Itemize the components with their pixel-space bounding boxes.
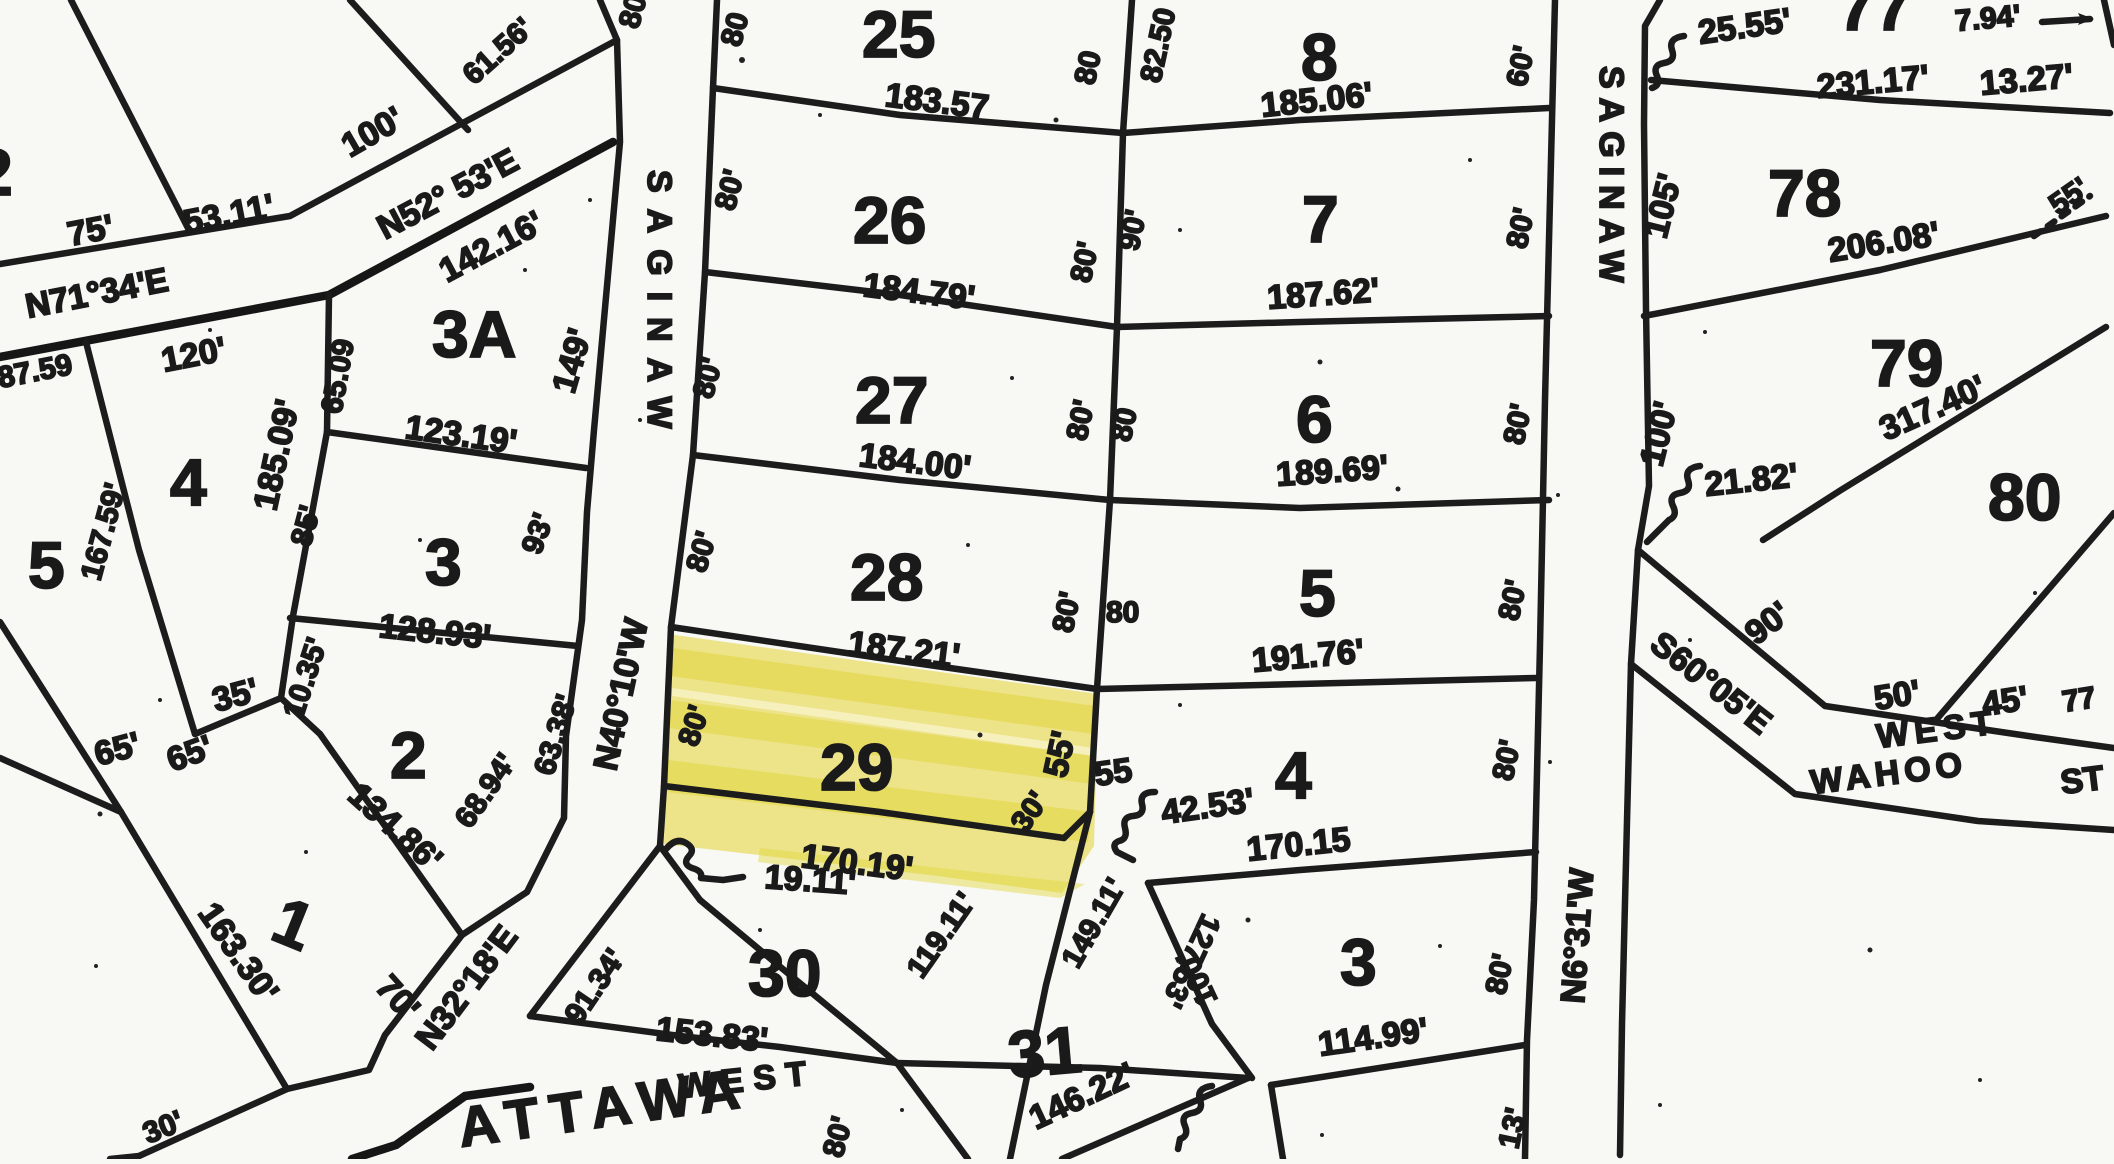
svg-text:78: 78 <box>1768 156 1841 230</box>
svg-text:80: 80 <box>1988 460 2061 534</box>
svg-text:187.62': 187.62' <box>1266 271 1380 317</box>
svg-text:13.27': 13.27' <box>1978 57 2074 103</box>
svg-text:4: 4 <box>1275 738 1312 812</box>
svg-text:80: 80 <box>1069 48 1108 88</box>
svg-text:50': 50' <box>1871 673 1922 718</box>
svg-text:28: 28 <box>850 540 923 614</box>
svg-text:77: 77 <box>2060 681 2098 719</box>
svg-text:25: 25 <box>862 0 935 71</box>
svg-text:7.94': 7.94' <box>1954 0 2022 38</box>
svg-text:5: 5 <box>28 528 65 602</box>
svg-text:80: 80 <box>1106 596 1139 629</box>
svg-text:30: 30 <box>748 936 821 1010</box>
svg-text:55: 55 <box>1092 751 1135 794</box>
svg-text:SAGINAW: SAGINAW <box>640 170 678 444</box>
svg-text:27: 27 <box>855 363 928 437</box>
svg-text:ST: ST <box>2058 759 2106 802</box>
svg-text:6: 6 <box>1296 382 1333 456</box>
svg-text:80: 80 <box>1105 405 1144 445</box>
svg-text:77: 77 <box>1838 0 1911 44</box>
svg-text:189.69': 189.69' <box>1275 448 1389 494</box>
svg-text:26: 26 <box>853 183 926 257</box>
svg-text:SAGINAW: SAGINAW <box>1592 66 1630 291</box>
svg-text:5: 5 <box>1299 556 1336 630</box>
svg-text:2: 2 <box>0 135 13 209</box>
svg-text:3: 3 <box>425 525 462 599</box>
svg-text:29: 29 <box>820 730 893 804</box>
svg-text:4: 4 <box>170 445 207 519</box>
svg-text:7: 7 <box>1302 182 1339 256</box>
svg-text:2: 2 <box>390 718 427 792</box>
svg-text:3: 3 <box>1340 925 1377 999</box>
svg-text:19.11': 19.11' <box>763 858 857 902</box>
svg-text:3A: 3A <box>432 297 516 371</box>
